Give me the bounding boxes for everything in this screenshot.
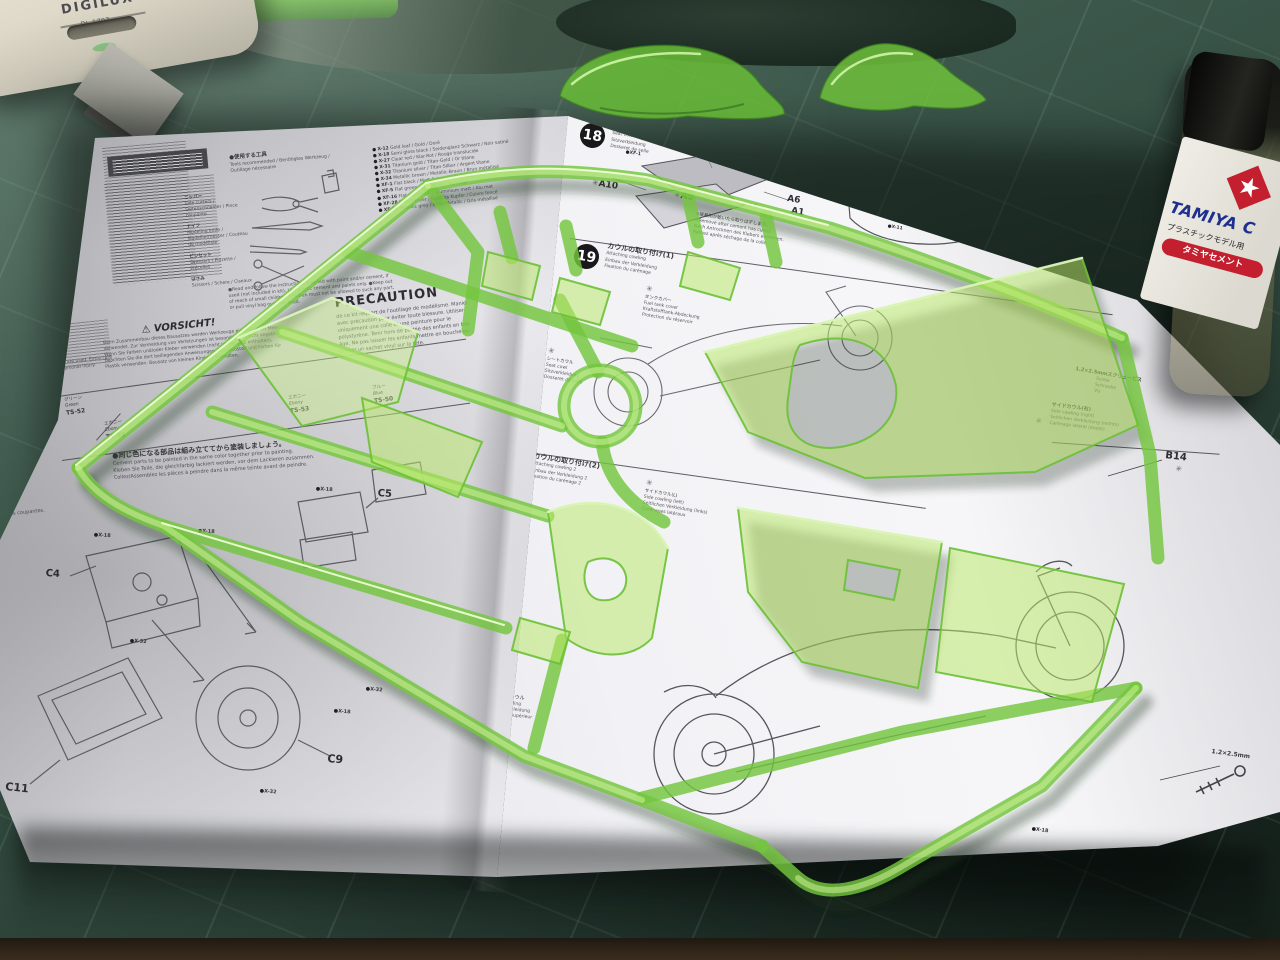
swatch-code: TS-50 xyxy=(374,395,394,406)
part-label-a10: ✳A10 xyxy=(591,170,620,193)
cement-bottle-cap xyxy=(1181,50,1275,153)
paint-mark-x18: ●X-18 xyxy=(316,486,333,494)
paint-dot-icon: ● xyxy=(378,208,382,213)
photo-scene: DIGILUX DL-1703 ●使用する工具 Tools recommende… xyxy=(0,0,1280,960)
vorsicht-body: Beim Zusammenbau dieses Bausatzes werden… xyxy=(103,325,291,371)
paint-mark-x32: ●X-32 xyxy=(365,686,382,694)
swatch-code: TS-52 xyxy=(66,407,86,418)
sprue-cut-icon: ✳ xyxy=(645,478,653,488)
part-label-a1: A1 xyxy=(790,206,805,218)
booklet-bottom-shadow xyxy=(17,827,1263,953)
motorcycle-drawing-step19 xyxy=(594,286,892,426)
paint-dot-icon: ● xyxy=(373,154,377,159)
paint-dot-icon: ● xyxy=(377,196,381,201)
swatch-blue: ブルー Blue TS-50 xyxy=(372,383,394,406)
screw-size-bottom: 1.2×2.5mm xyxy=(1211,748,1251,762)
paint-mark-xf1: ●XF-1 xyxy=(625,150,641,158)
cement-note: ●同じ色になる部品は組み立ててから塗装しましょう。 Cement parts t… xyxy=(112,438,315,482)
tool-item: ピンセット Tweezers / Pinzette / Précelles xyxy=(189,249,256,273)
step20-callout-right: サイドカウル(右) Side cowling (right) Seitliche… xyxy=(1049,402,1121,435)
paint-mark-x32: ●X-32 xyxy=(259,788,276,796)
part-label-c4: C4 xyxy=(45,568,60,580)
step19-title: カウルの取り付け(1) Attaching cowling Einbau der… xyxy=(604,242,675,280)
step19-callout-tank: ✳ タンクカバー Fuel tank cover Kraftstofftank-… xyxy=(641,276,704,328)
tool-item: ニッパー Side cutters / Seitenschneider / Pi… xyxy=(184,190,252,220)
swatch-green: グリーン Green TS-52 xyxy=(64,395,86,418)
paint-mark-x18: ●X-18 xyxy=(198,528,215,536)
screw-note-top: 1.2×2.5mmスクリュービス Screw Schraube Vis xyxy=(1072,366,1143,402)
swatch-ebony-2: エボニー Ebony TS-53 xyxy=(288,393,310,416)
part-label-c9: C9 xyxy=(327,752,344,766)
inverted-header-lines xyxy=(112,153,203,174)
part-label-a6: A6 xyxy=(786,194,801,206)
tools-section-header: ●使用する工具 Tools recommended / Benötigtes W… xyxy=(229,145,350,175)
swatch-ebony-1: エボニー Ebony TS-53 xyxy=(104,419,126,442)
sprue-cut-icon: ✳ xyxy=(1035,416,1043,426)
tool-item: ナイフ Modeling knife / Modelliermesser / C… xyxy=(187,219,255,249)
part-label-b14: B14 xyxy=(1165,450,1188,464)
tools-list: ニッパー Side cutters / Seitenschneider / Pi… xyxy=(184,190,258,289)
swatch-code: TS-53 xyxy=(106,431,126,442)
paint-dot-icon: ● xyxy=(372,148,376,153)
paint-dot-icon: ● xyxy=(376,184,380,189)
paint-dot-icon: ● xyxy=(374,166,378,171)
paint-dot-icon: ● xyxy=(378,202,382,207)
paint-mark-x18: ●X-18 xyxy=(333,708,350,716)
step20-callout-left: ✳ サイドカウル(L) Side cowling (left) Seitlich… xyxy=(641,470,712,523)
swatch-code: TS-53 xyxy=(290,405,310,416)
paint-mark-ts8: ●TS-8 xyxy=(741,202,757,210)
tool-names: Modeling knife / Modelliermesser / Coute… xyxy=(187,225,254,249)
part-label-c5: C5 xyxy=(377,488,392,500)
paint-mark-x18: ●X-18 xyxy=(1031,826,1049,835)
motorcycle-drawing-step20 xyxy=(654,561,1124,814)
paint-dot-icon: ● xyxy=(375,172,379,177)
paint-code: XF-56 xyxy=(384,206,399,212)
part-label-c11: C11 xyxy=(5,780,30,795)
step19-number-badge: 19 xyxy=(572,242,601,271)
paint-mark-x18: ●X-18 xyxy=(94,532,111,540)
step18-note: ※接着剤が乾いたら取りはずします。 ※Remove after cement h… xyxy=(692,212,786,250)
sprue-cut-icon: ✳ xyxy=(1175,464,1183,474)
divider-right-box xyxy=(1052,442,1220,455)
paint-mark-x11: ●X-11 xyxy=(887,224,903,233)
screw-drawing xyxy=(1108,460,1245,794)
paint-dot-icon: ● xyxy=(376,190,380,195)
sprue-cut-icon: ✳ xyxy=(645,284,653,294)
paint-mark-x32: ●X-32 xyxy=(130,638,147,646)
part-label-a9: ✳A9 xyxy=(673,182,696,204)
paint-dot-icon: ● xyxy=(375,178,379,183)
paint-dot-icon: ● xyxy=(373,160,377,165)
